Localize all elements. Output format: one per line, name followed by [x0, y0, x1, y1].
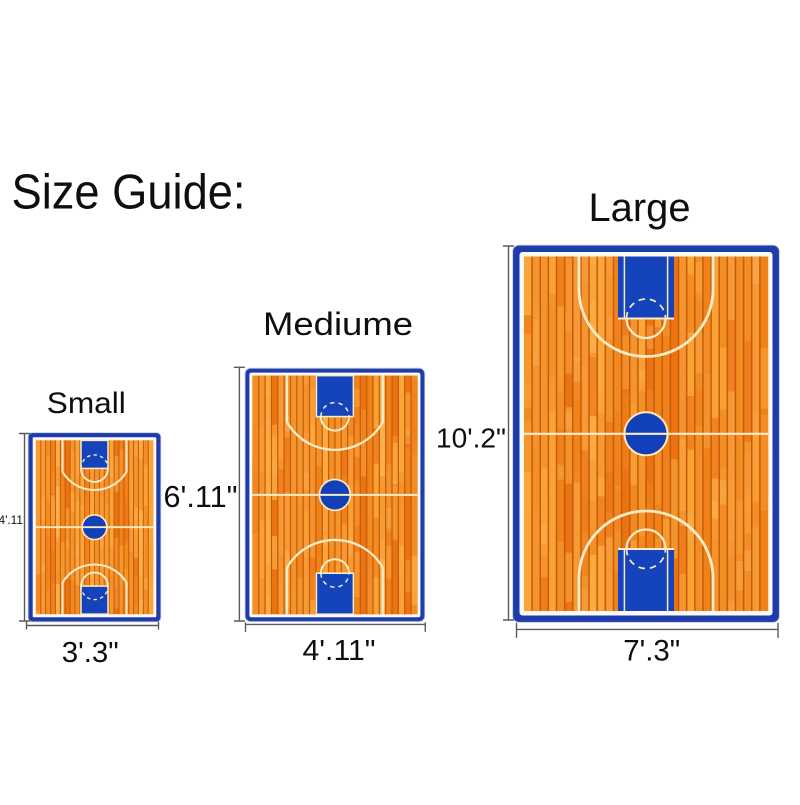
svg-text:10'.2": 10'.2" — [436, 423, 506, 454]
svg-text:4'.11": 4'.11" — [303, 635, 376, 667]
svg-text:Large: Large — [589, 186, 691, 230]
svg-text:Small: Small — [47, 387, 126, 420]
svg-text:4'.11: 4'.11 — [0, 515, 23, 527]
svg-text:6'.11": 6'.11" — [164, 479, 238, 514]
svg-text:Size Guide:: Size Guide: — [12, 166, 246, 220]
svg-text:3'.3": 3'.3" — [62, 637, 119, 669]
svg-text:7'.3": 7'.3" — [623, 634, 680, 667]
svg-text:Mediume: Mediume — [263, 306, 413, 342]
